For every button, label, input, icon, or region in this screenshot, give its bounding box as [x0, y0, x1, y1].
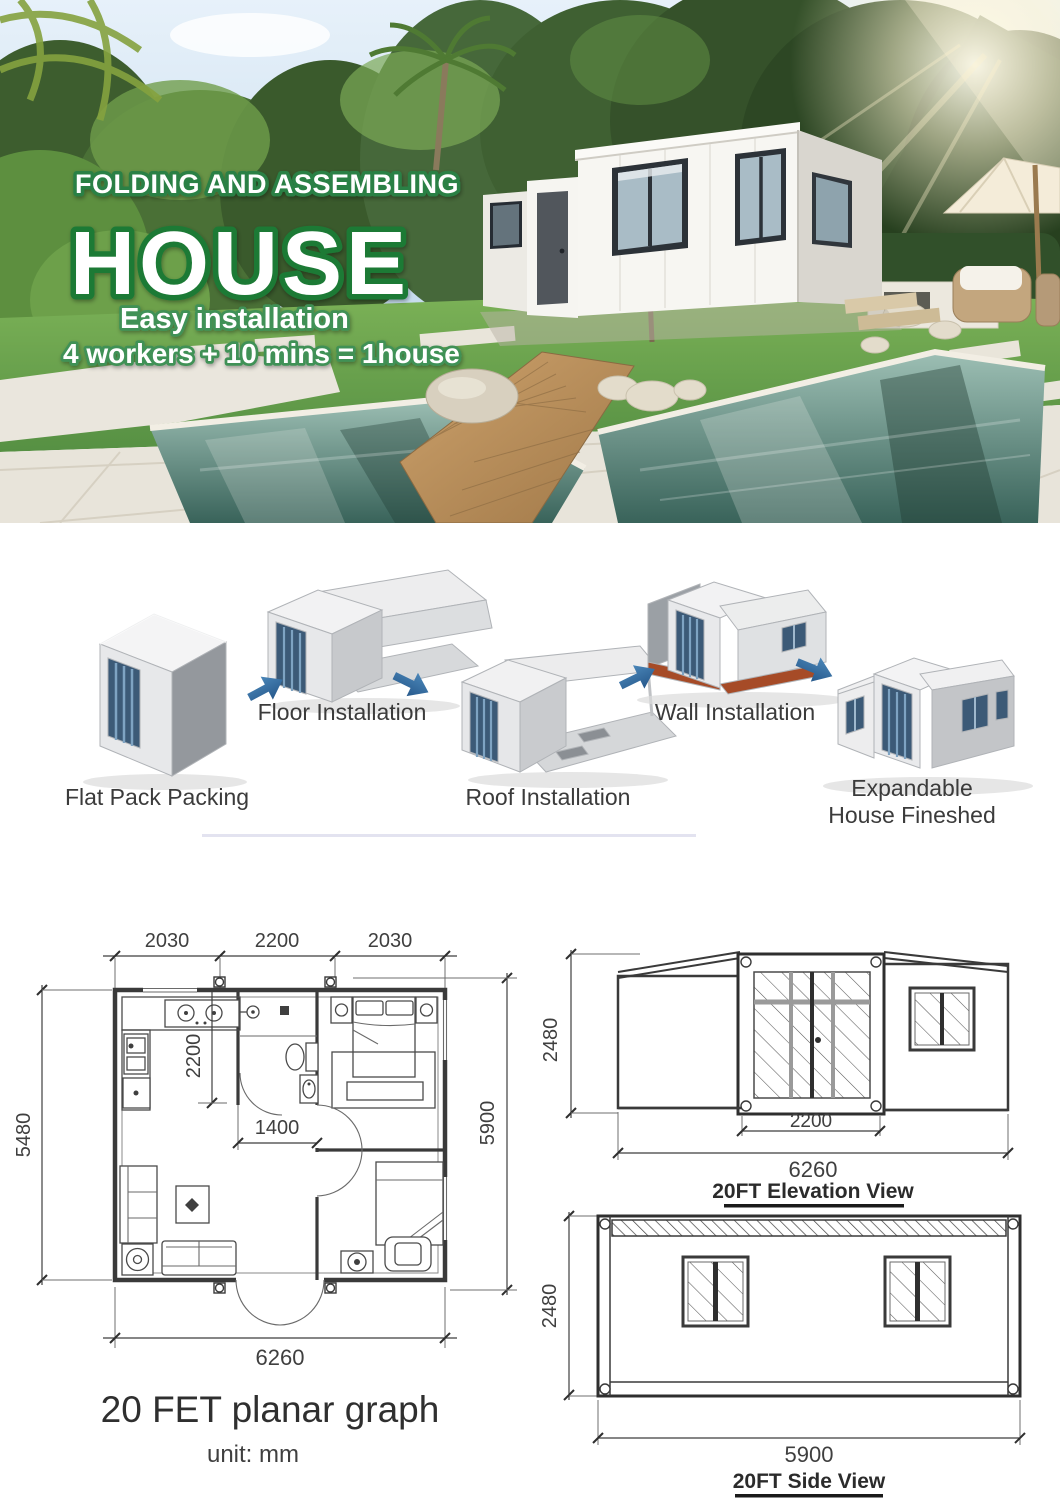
dim-label: 2480 [540, 1018, 562, 1063]
assembly-steps-diagram: Flat Pack Packing Floor Installation Roo… [0, 555, 1060, 900]
side-view: 2480 5900 20FT Side View [539, 1211, 1025, 1498]
dim-label: 2200 [255, 930, 300, 952]
dim-label: 2200 [790, 1111, 832, 1132]
side-window [683, 1257, 748, 1326]
floor-installation-illustration [268, 570, 492, 714]
entry-doors [236, 1280, 324, 1325]
kitchen-fixtures [122, 997, 240, 1110]
dim-label: 5900 [785, 1442, 834, 1467]
dim-label: 6260 [256, 1345, 305, 1370]
step-label: Expandable [851, 775, 973, 801]
step-label: Floor Installation [258, 699, 427, 725]
elevation-window [910, 988, 974, 1050]
step-label: House Fineshed [828, 802, 996, 828]
hero-subtitle: Easy installation [120, 303, 349, 335]
dim-label: 2480 [539, 1284, 561, 1329]
section-divider [202, 834, 696, 837]
dim-label: 6260 [789, 1157, 838, 1182]
dim-label: 5480 [13, 1113, 35, 1158]
dim-label: 2030 [145, 930, 190, 952]
product-listing-image: FOLDING AND ASSEMBLING HOUSE Easy instal… [0, 0, 1060, 1500]
hero-photo-scene: FOLDING AND ASSEMBLING HOUSE Easy instal… [0, 0, 1060, 523]
hero-title: HOUSE [70, 214, 410, 314]
dim-label: 2030 [368, 930, 413, 952]
hero-kicker: FOLDING AND ASSEMBLING [75, 169, 459, 199]
flat-pack-illustration [83, 614, 247, 790]
elevation-view-title: 20FT Elevation View [712, 1180, 914, 1203]
floor-plan-title: 20 FET planar graph [101, 1389, 440, 1430]
dim-label: 2200 [183, 1034, 205, 1079]
elevation-view: 2480 [540, 949, 1013, 1208]
side-view-title: 20FT Side View [733, 1470, 886, 1493]
roof-hatch-strip [612, 1220, 1006, 1236]
bathroom-fixtures [240, 1006, 318, 1115]
hero-tagline: 4 workers + 10 mins = 1house [63, 338, 460, 369]
step-label: Flat Pack Packing [65, 784, 249, 810]
elevation-glass-doors [738, 954, 884, 1114]
technical-drawings: 2030 2200 2030 5480 5900 [0, 900, 1060, 1500]
step-label: Roof Installation [466, 784, 631, 810]
house-door [537, 191, 568, 305]
step-label: Wall Installation [655, 699, 815, 725]
dim-label: 5900 [477, 1101, 499, 1146]
floor-plan-unit-note: unit: mm [207, 1441, 299, 1468]
living-room-furniture [120, 1166, 236, 1275]
dim-label: 1400 [255, 1117, 300, 1139]
second-bedroom-furniture [341, 1162, 443, 1273]
side-window [885, 1257, 950, 1326]
floor-plan: 2030 2200 2030 5480 5900 [13, 930, 517, 1468]
wall-installation-illustration [637, 582, 847, 708]
